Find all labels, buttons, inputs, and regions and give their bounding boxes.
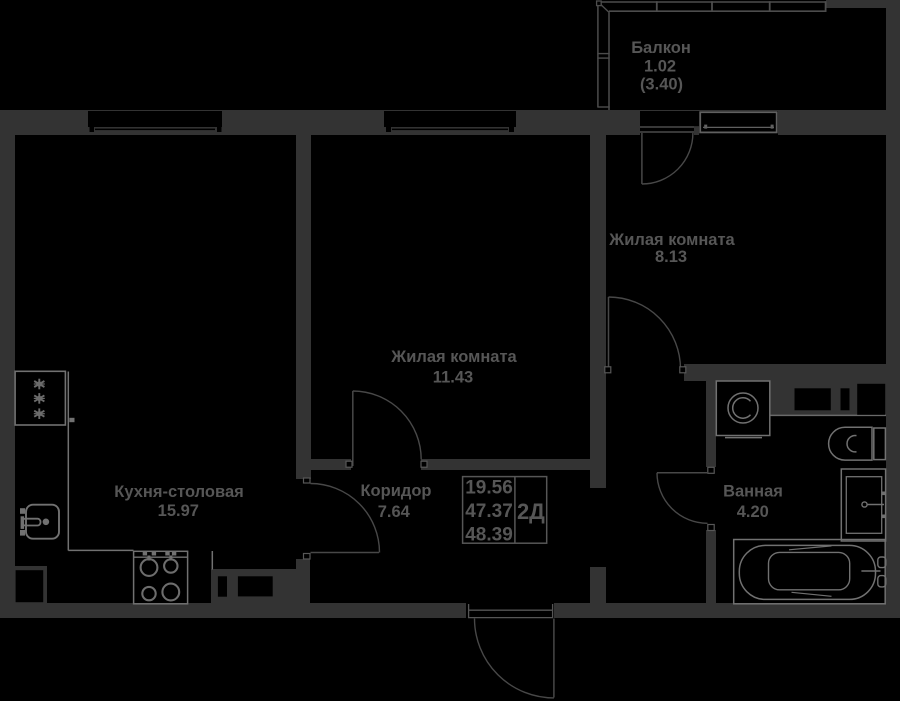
svg-text:Коридор: Коридор	[360, 482, 431, 500]
svg-text:47.37: 47.37	[465, 501, 513, 522]
svg-text:8.13: 8.13	[655, 248, 687, 266]
svg-text:Жилая комната: Жилая комната	[608, 231, 735, 249]
svg-text:48.39: 48.39	[465, 525, 513, 546]
svg-text:11.43: 11.43	[433, 369, 473, 387]
svg-text:4.20: 4.20	[737, 503, 769, 521]
svg-text:15.97: 15.97	[158, 502, 199, 520]
svg-text:Балкон: Балкон	[631, 39, 691, 57]
svg-text:Жилая комната: Жилая комната	[390, 348, 517, 366]
svg-text:19.56: 19.56	[465, 478, 513, 499]
svg-text:7.64: 7.64	[378, 503, 411, 521]
svg-text:1.02: 1.02	[644, 57, 676, 75]
svg-text:(3.40): (3.40)	[640, 76, 683, 94]
svg-text:Ванная: Ванная	[723, 482, 783, 500]
svg-text:2Д: 2Д	[517, 499, 545, 524]
svg-text:Кухня-столовая: Кухня-столовая	[114, 483, 244, 501]
